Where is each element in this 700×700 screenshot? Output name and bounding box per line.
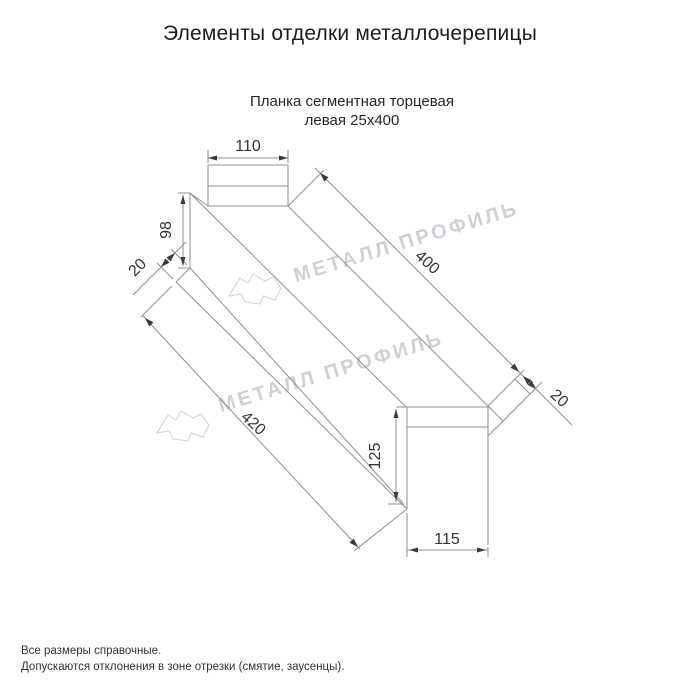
footnote-line1: Все размеры справочные. <box>21 643 344 659</box>
dim-bottom-length-label: 420 <box>237 408 268 439</box>
near-flap-edge <box>176 268 190 282</box>
catalog-page: МЕТАЛЛ ПРОФИЛЬ МЕТАЛЛ ПРОФИЛЬ <box>0 0 700 700</box>
dim-left-height-label: 98 <box>158 221 175 239</box>
brand-logo-watermark-icon <box>157 411 209 441</box>
dim-top-length-label: 400 <box>411 247 442 278</box>
dim-right-flap-label: 20 <box>547 386 572 411</box>
dim-end-width-label: 115 <box>434 531 460 548</box>
watermark-text: МЕТАЛЛ ПРОФИЛЬ <box>216 328 446 417</box>
brand-logo-watermark-icon <box>229 274 281 304</box>
product-subtitle: Планка сегментная торцевая левая 25х400 <box>0 92 700 130</box>
footnote-line2: Допускаются отклонения в зоне отрезки (с… <box>21 659 344 675</box>
dim-end-height-label: 125 <box>367 443 384 470</box>
product-subtitle-line1: Планка сегментная торцевая <box>0 92 700 111</box>
dim-top-width-label: 110 <box>235 138 261 155</box>
product-subtitle-line2: левая 25х400 <box>0 111 700 130</box>
footnotes: Все размеры справочные. Допускаются откл… <box>21 643 344 675</box>
dim-left-flap-label: 20 <box>126 255 151 280</box>
page-title: Элементы отделки металлочерепицы <box>0 22 700 46</box>
watermark-text: МЕТАЛЛ ПРОФИЛЬ <box>291 198 521 287</box>
